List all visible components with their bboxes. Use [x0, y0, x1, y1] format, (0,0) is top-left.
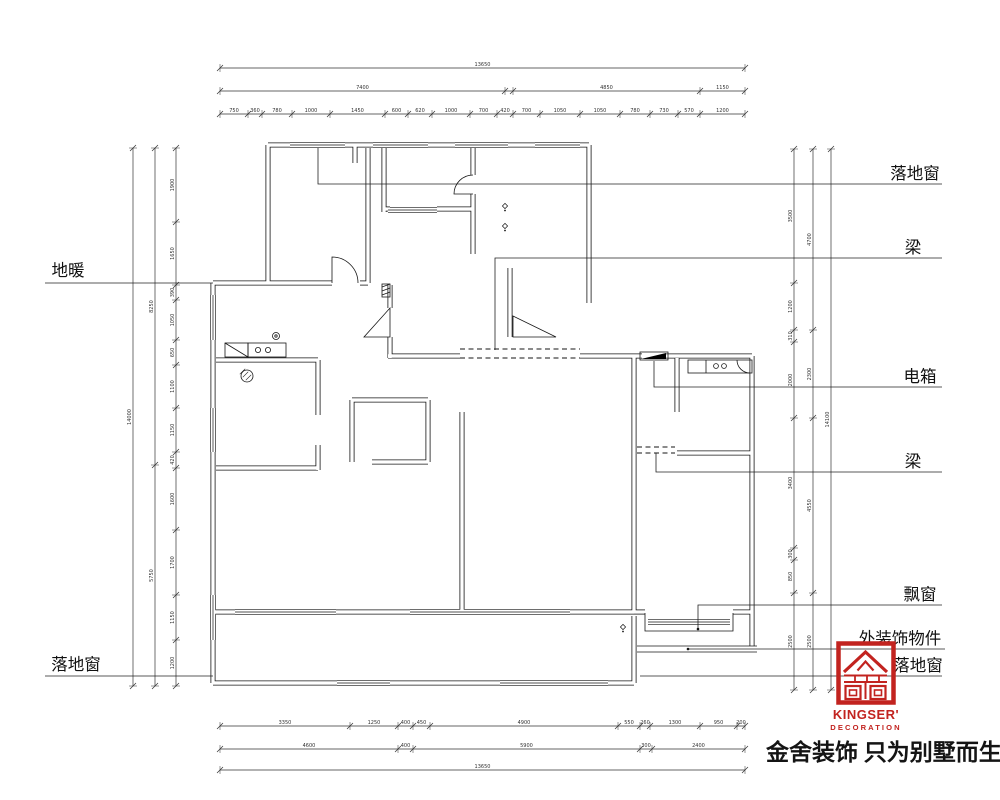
- fixture: [722, 364, 727, 369]
- dimension-value: 1200: [788, 300, 794, 313]
- symbol-dot: [504, 210, 506, 212]
- dimension-value: 2300: [807, 368, 813, 381]
- fixture: [275, 335, 277, 337]
- fixture: [255, 347, 260, 352]
- dimension-line: 14100: [825, 146, 835, 693]
- dimension-value: 1700: [170, 556, 176, 569]
- dimension-value: 950: [714, 720, 724, 726]
- plumbing-symbol-icon: [502, 203, 507, 208]
- floor-plan-walls: [213, 145, 752, 683]
- dimension-value: 1150: [170, 611, 176, 624]
- dimension-value: 1100: [170, 380, 176, 393]
- annotation-label: 地暖: [52, 261, 85, 280]
- dimension-value: 4900: [518, 720, 531, 726]
- callout-floor-window-bottom-left: 落地窗: [45, 655, 213, 676]
- dimension-value: 4700: [807, 233, 813, 246]
- dimension-value: 5750: [149, 569, 155, 582]
- dimension-value: 700: [479, 108, 489, 114]
- dimension-value: 600: [392, 108, 402, 114]
- dimension-value: 850: [788, 572, 794, 582]
- callout-floor-heating: 地暖: [45, 261, 213, 283]
- callout-floor-window-top: 落地窗: [318, 148, 942, 184]
- leader-line: [698, 605, 942, 629]
- fixture: [714, 364, 719, 369]
- fixture: [225, 343, 248, 357]
- dimension-value: 700: [522, 108, 532, 114]
- dimension-value: 310: [788, 331, 794, 341]
- dimension-line: 35001200310200034003008502500: [788, 146, 798, 693]
- callout-bay-window: 飘窗: [697, 585, 942, 630]
- dimension-value: 2500: [807, 635, 813, 648]
- dimension-value: 550: [624, 720, 634, 726]
- brand-slogan: 金舍装饰 只为别墅而生。: [765, 739, 1000, 765]
- dimension-value: 200: [736, 720, 746, 726]
- dimension-value: 400: [401, 720, 411, 726]
- dimension-value: 4550: [807, 499, 813, 512]
- dimension-value: 3350: [279, 720, 292, 726]
- callout-floor-window-bottom-right: 落地窗: [640, 656, 943, 676]
- dimension-value: 1050: [554, 108, 567, 114]
- leader-line: [656, 453, 942, 472]
- leader-line: [654, 361, 942, 387]
- dimension-value: 1650: [170, 247, 176, 260]
- dimension-line: 3350125040045049005502601300950200: [217, 720, 748, 730]
- plumbing-symbol-icon: [620, 624, 625, 629]
- dimension-value: 2000: [788, 374, 794, 387]
- leader-line: [495, 258, 942, 350]
- dimension-value: 1150: [170, 424, 176, 437]
- dimension-value: 780: [630, 108, 640, 114]
- dimension-value: 2500: [788, 635, 794, 648]
- floorplan-canvas: 7503607801000145060062010007004207001050…: [0, 0, 1000, 800]
- dimension-value: 420: [170, 455, 176, 465]
- fixture: [265, 347, 270, 352]
- logo-subtitle: DECORATION: [830, 723, 901, 732]
- dimension-value: 1250: [368, 720, 381, 726]
- dimension-line: 7503607801000145060062010007004207001050…: [217, 108, 748, 118]
- dimension-value: 650: [170, 348, 176, 358]
- dimension-value: 4600: [303, 743, 316, 749]
- dimension-value: 390: [170, 288, 176, 298]
- dimension-value: 1000: [445, 108, 458, 114]
- dimension-value: 420: [500, 108, 510, 114]
- drawing-sheet: 7503607801000145060062010007004207001050…: [0, 0, 1000, 800]
- dimension-value: 8250: [149, 300, 155, 313]
- leader-dot: [687, 648, 690, 651]
- dimension-value: 7400: [356, 85, 369, 91]
- dimension-value: 14000: [127, 409, 133, 425]
- fixture: [332, 257, 358, 283]
- fixture: [454, 175, 473, 194]
- dimension-value: 1450: [351, 108, 364, 114]
- fixture: [273, 333, 280, 340]
- dimension-line: 13650: [217, 764, 748, 774]
- dimension-value: 1900: [170, 179, 176, 192]
- dimension-line: 4700230045502500: [807, 146, 817, 693]
- fixtures-and-doors: [225, 175, 757, 652]
- dimension-value: 1050: [170, 314, 176, 327]
- callout-electric-box: 电箱: [654, 361, 942, 387]
- annotation-label: 落地窗: [893, 656, 943, 675]
- fixture: [364, 308, 390, 337]
- dimension-value: 260: [640, 720, 650, 726]
- callout-exterior-ornament: 外装饰物件: [687, 629, 945, 650]
- leader-line: [318, 148, 942, 184]
- dimension-value: 14100: [825, 412, 831, 428]
- dimension-value: 1000: [305, 108, 318, 114]
- kingser-logo-icon: [839, 644, 894, 703]
- callout-labels: 落地窗梁电箱梁飘窗外装饰物件落地窗地暖落地窗: [45, 148, 945, 676]
- dimension-value: 1150: [716, 85, 729, 91]
- annotation-label: 落地窗: [890, 164, 940, 183]
- branding: KINGSER' DECORATION 金舍装饰 只为别墅而生。: [765, 644, 1000, 766]
- callout-beam-upper: 梁: [495, 238, 942, 350]
- dimension-value: 2400: [692, 743, 705, 749]
- plumbing-symbol-icon: [502, 223, 507, 228]
- dimension-line: 82505750: [149, 145, 159, 689]
- dimension-value: 570: [684, 108, 694, 114]
- dimension-value: 300: [641, 743, 651, 749]
- annotation-label: 落地窗: [51, 655, 101, 674]
- dimension-value: 750: [229, 108, 239, 114]
- dimension-value: 450: [417, 720, 427, 726]
- annotation-label: 电箱: [904, 367, 937, 386]
- dimension-value: 1600: [170, 493, 176, 506]
- symbol-dot: [504, 230, 506, 232]
- dimension-value: 360: [250, 108, 260, 114]
- dimension-value: 4850: [600, 85, 613, 91]
- dimension-line: 14000: [127, 145, 137, 689]
- dimension-value: 400: [401, 743, 411, 749]
- annotation-label: 飘窗: [904, 585, 937, 604]
- dimension-value: 300: [788, 549, 794, 559]
- dimension-annotations: 7503607801000145060062010007004207001050…: [127, 62, 835, 774]
- dimension-value: 13650: [475, 62, 491, 68]
- dimension-value: 1050: [594, 108, 607, 114]
- dimension-line: 1900165039010506501100115042016001700115…: [170, 145, 180, 689]
- dimension-value: 3500: [788, 210, 794, 223]
- dimension-line: 740048501150: [217, 85, 748, 95]
- dimension-value: 1200: [170, 657, 176, 670]
- leader-dot: [697, 628, 700, 631]
- dimension-value: 1300: [669, 720, 682, 726]
- dimension-value: 3400: [788, 477, 794, 490]
- annotation-label: 梁: [905, 238, 922, 257]
- logo-name: KINGSER': [833, 707, 899, 722]
- dimension-value: 780: [272, 108, 282, 114]
- electric-box-icon: [641, 353, 666, 359]
- fixture: [513, 316, 556, 337]
- fixture: [737, 360, 750, 373]
- dimension-value: 13650: [475, 764, 491, 770]
- symbol-dot: [622, 631, 624, 633]
- floor-drain-icon: [241, 370, 253, 382]
- fixture: [248, 343, 286, 357]
- dimension-line: 13650: [217, 62, 748, 72]
- dimension-line: 460040059003002400: [217, 743, 748, 753]
- dimension-value: 620: [415, 108, 425, 114]
- dimension-value: 1200: [716, 108, 729, 114]
- dimension-value: 5900: [520, 743, 533, 749]
- annotation-label: 梁: [905, 452, 922, 471]
- dimension-value: 730: [659, 108, 669, 114]
